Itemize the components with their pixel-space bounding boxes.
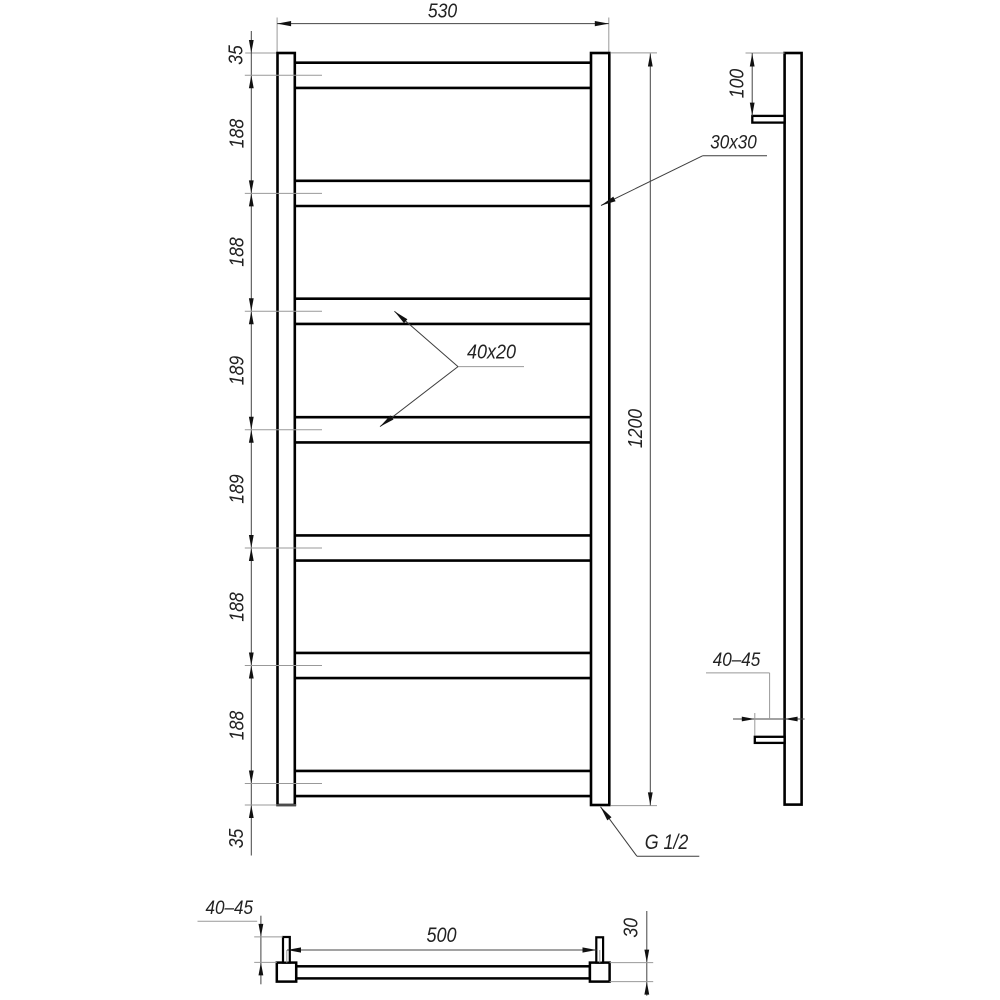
svg-text:35: 35	[225, 45, 248, 65]
svg-text:100: 100	[726, 68, 749, 98]
svg-text:35: 35	[226, 828, 249, 848]
svg-text:1200: 1200	[625, 409, 648, 449]
svg-text:40–45: 40–45	[713, 649, 761, 670]
svg-text:530: 530	[428, 0, 458, 22]
svg-text:30x30: 30x30	[710, 131, 757, 152]
svg-text:30: 30	[620, 918, 643, 938]
svg-text:40x20: 40x20	[467, 342, 516, 364]
svg-text:189: 189	[226, 474, 249, 504]
svg-text:189: 189	[226, 355, 249, 385]
svg-text:G 1/2: G 1/2	[645, 831, 689, 855]
svg-text:188: 188	[226, 710, 249, 740]
svg-text:40–45: 40–45	[206, 897, 254, 918]
svg-text:188: 188	[226, 118, 249, 148]
svg-text:188: 188	[226, 237, 249, 267]
svg-text:500: 500	[426, 924, 456, 948]
svg-text:188: 188	[226, 592, 249, 622]
